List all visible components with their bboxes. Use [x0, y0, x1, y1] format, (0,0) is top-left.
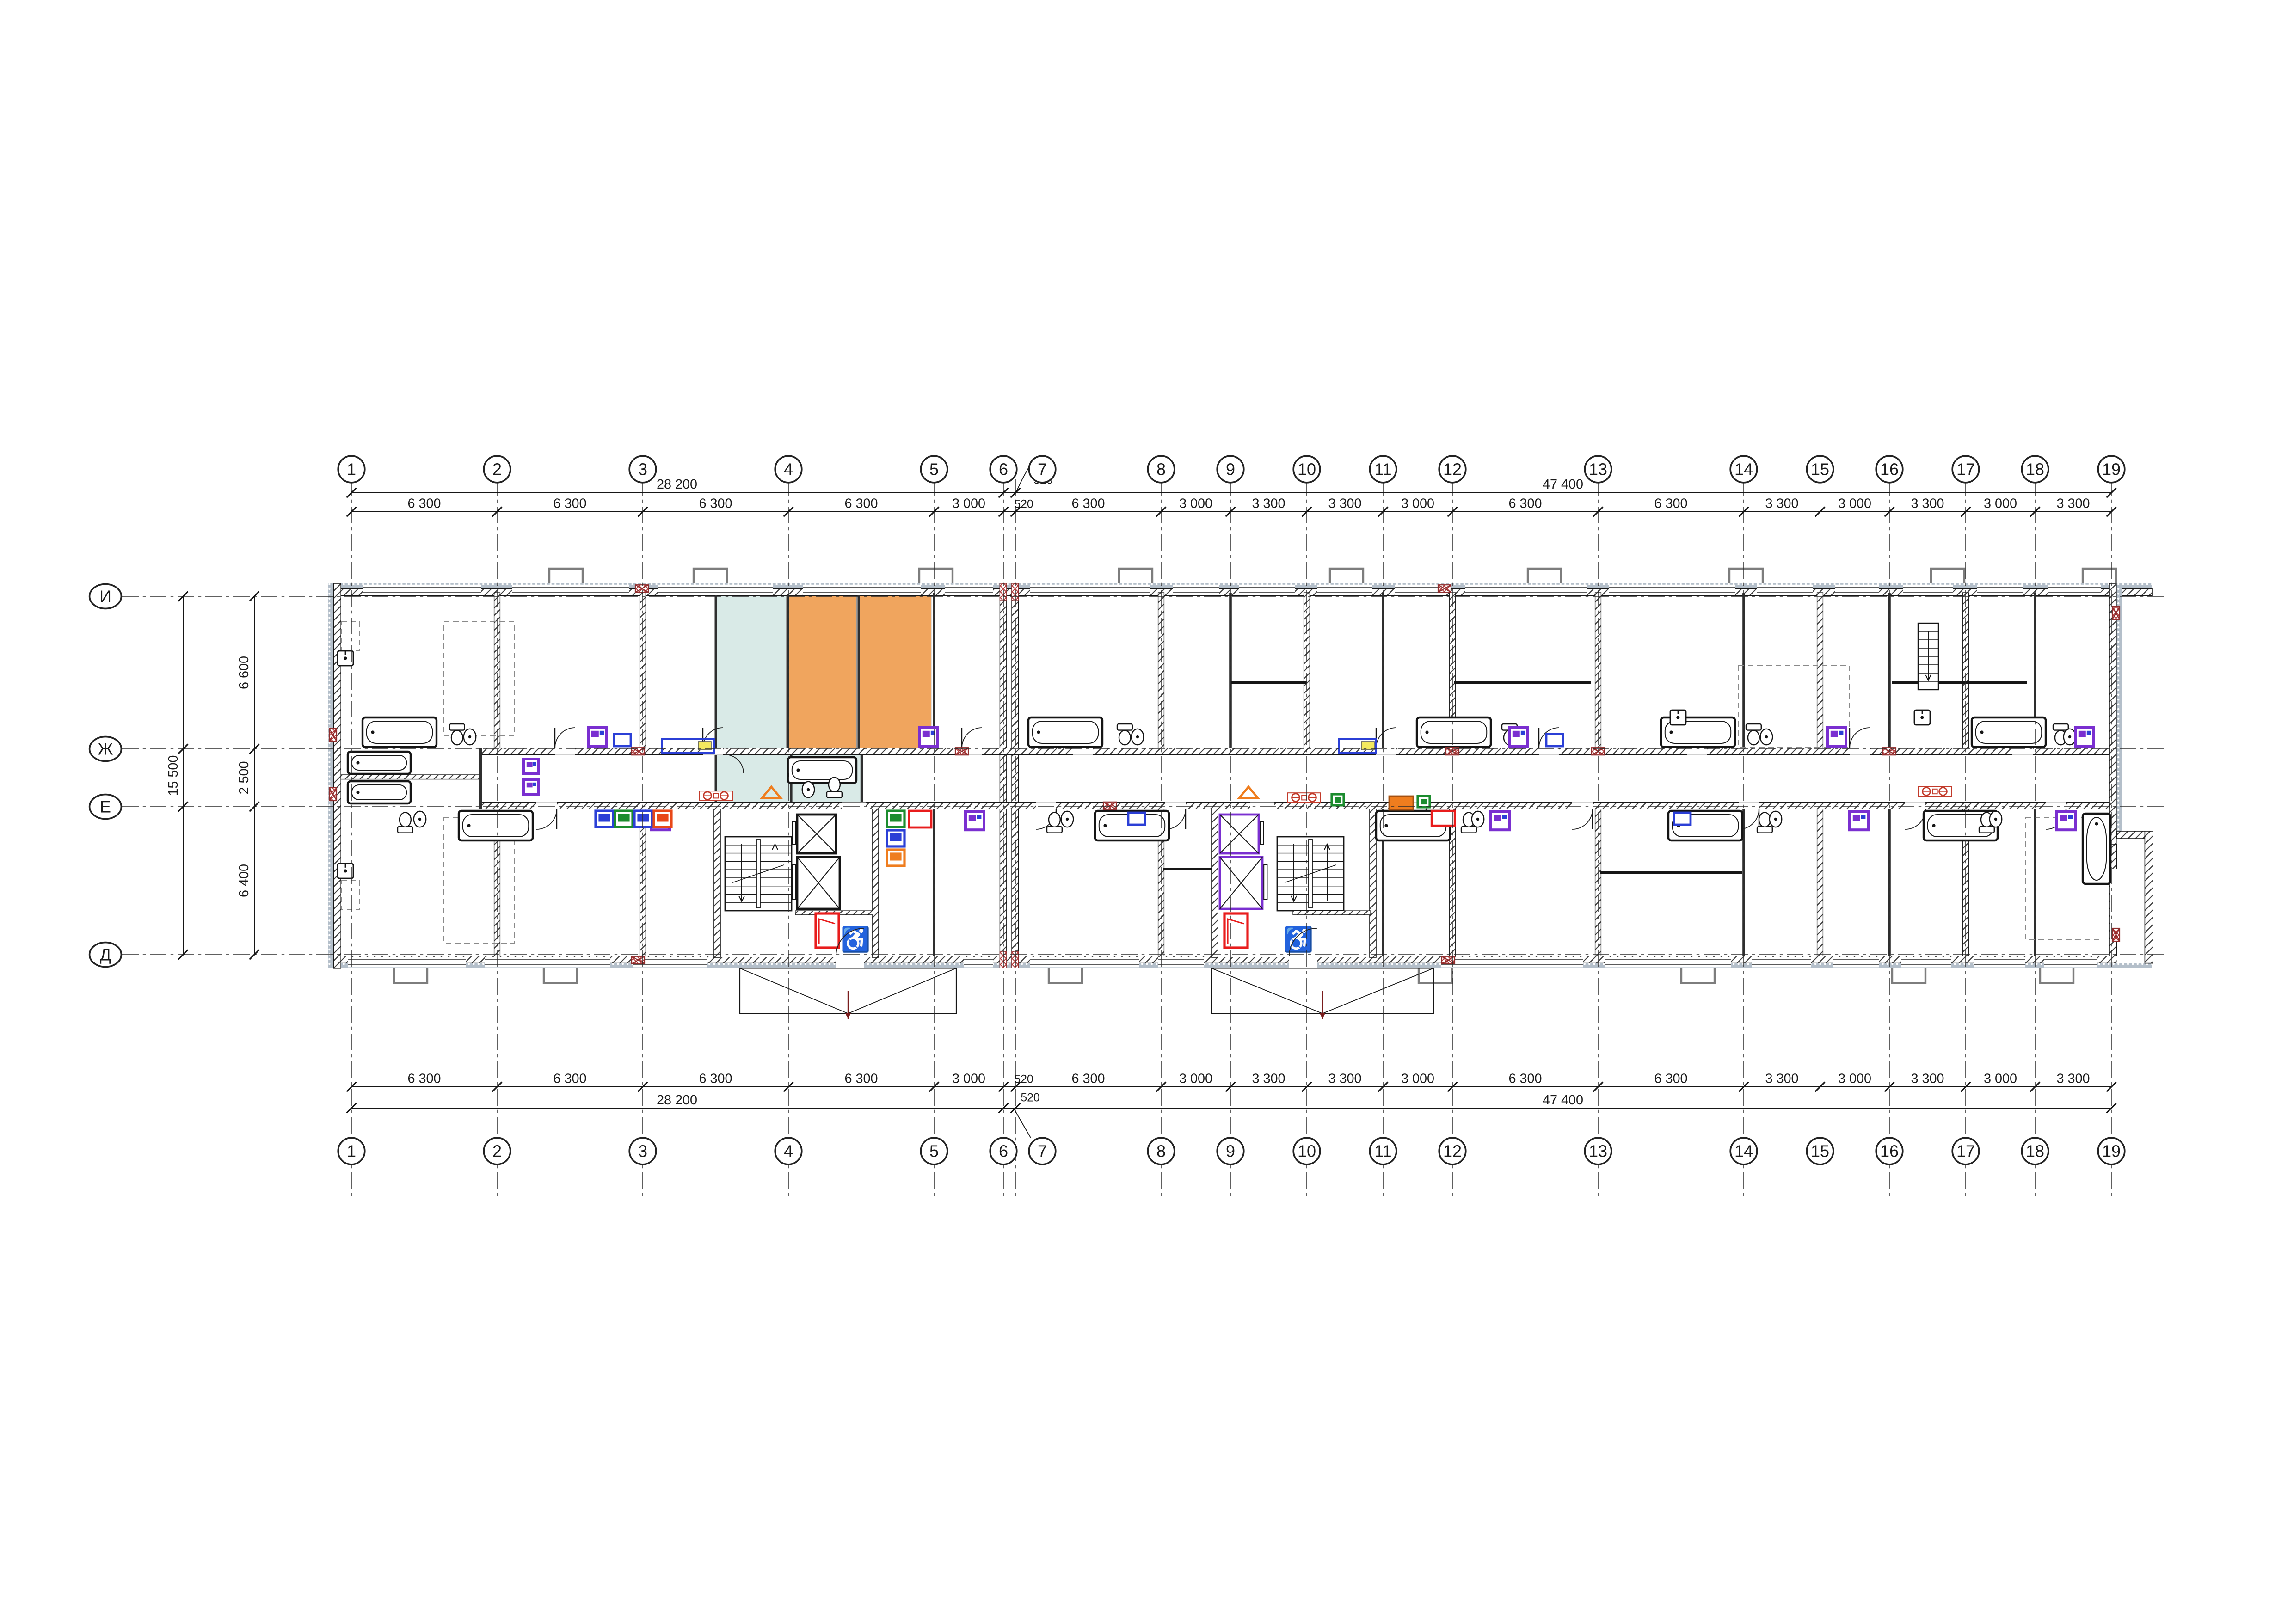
window-opening [1903, 585, 1953, 595]
parapet-stub [1729, 569, 1763, 583]
dimension-offset: 520 [1021, 1091, 1039, 1104]
corridor-opening [1572, 802, 1593, 809]
toilet-tank [1979, 827, 1994, 833]
window-opening [1835, 585, 1879, 595]
corridor-opening [536, 802, 557, 809]
washer-detail [527, 783, 533, 788]
unit-wall [861, 754, 863, 802]
toilet-bowl [1049, 813, 1060, 827]
entry-opening [836, 956, 864, 968]
bathtub-drain [356, 791, 359, 794]
dimension-label: 3 000 [1984, 496, 2017, 511]
grid-column-number: 2 [492, 1141, 502, 1160]
dimension-label: 3 300 [1328, 496, 1361, 511]
window-opening [2044, 957, 2097, 967]
dimension-label: 3 000 [1401, 1071, 1434, 1086]
dashed-boundary [444, 621, 514, 736]
parapet-stub [2040, 968, 2073, 983]
dimension-label: 3 000 [952, 1071, 985, 1086]
window-opening [1239, 585, 1295, 595]
grid-row-letter: И [99, 587, 111, 606]
window-opening [1609, 585, 1735, 595]
dimension-label: 3 300 [1252, 496, 1285, 511]
washer-detail [1494, 815, 1501, 821]
washer-detail [2068, 815, 2073, 819]
grid-row-letter: Е [100, 797, 111, 816]
corridor-opening [842, 803, 866, 809]
window-opening [1605, 957, 1731, 967]
grid-column-number: 10 [1298, 1141, 1316, 1160]
elevator-counterweight [793, 864, 796, 900]
window-opening [1977, 585, 2023, 595]
dimension-total: 47 400 [1543, 477, 1583, 492]
washer-detail [1831, 731, 1838, 737]
grid-column-number: 14 [1734, 460, 1753, 478]
dimension-label: 6 300 [844, 496, 878, 511]
toilet-bowl [1759, 813, 1771, 827]
dimension-label: 6 300 [1071, 496, 1105, 511]
appliance-detail [1421, 799, 1427, 804]
window-opening [1158, 957, 1204, 967]
grid-column-number: 11 [1374, 1141, 1391, 1160]
apartment-wall [1963, 593, 1969, 748]
sink-drain [1765, 735, 1768, 738]
window-opening [2048, 585, 2101, 595]
dimension-label: 6 300 [553, 1071, 586, 1086]
appliance-detail [637, 814, 649, 821]
grid-column-number: 9 [1226, 460, 1235, 478]
grid-column-number: 12 [1443, 1141, 1462, 1160]
canopy-diagonal [1212, 968, 1322, 1013]
core-wall [872, 809, 879, 957]
window-opening [964, 957, 993, 967]
grid-column-number: 10 [1298, 460, 1316, 478]
cabinet-blue-icon [1674, 813, 1691, 825]
parapet-stub [1528, 569, 1561, 583]
grid-column-number: 18 [2026, 1141, 2044, 1160]
toilet-tank [449, 724, 465, 730]
window-opening [803, 585, 921, 595]
window-opening [485, 957, 610, 967]
door-swing-arc [962, 728, 982, 748]
washer-detail [600, 731, 604, 735]
window-opening [1465, 585, 1587, 595]
elevator-counterweight [793, 822, 796, 844]
partition-wall [933, 593, 935, 748]
highlighted-room-teal [715, 594, 786, 748]
unit-wall [715, 594, 717, 803]
core-wall [714, 809, 720, 957]
apartment-wall [640, 593, 646, 748]
unit-wall [857, 594, 860, 748]
appliance-orange-icon [1389, 796, 1413, 810]
dimension-label: 520 [1014, 1073, 1033, 1085]
toilet-tank [827, 791, 842, 798]
sink-drain [1994, 818, 1997, 821]
corridor-end-wall [479, 748, 482, 809]
cabinet-blue-icon [614, 734, 631, 746]
dimension-total: 15 500 [166, 755, 181, 796]
grid-column-number: 13 [1589, 1141, 1607, 1160]
dimension-label: 3 000 [1838, 1071, 1871, 1086]
appliance-detail [598, 814, 610, 821]
walls-layer: ♿♿ [328, 569, 2153, 1019]
grid-column-number: 19 [2102, 460, 2121, 478]
sink-drain [807, 788, 810, 791]
bathtub-drain [1669, 730, 1673, 734]
grid-column-number: 1 [347, 1141, 356, 1160]
toilet-tank [398, 827, 413, 833]
dimension-label: 3 300 [1765, 1071, 1798, 1086]
grid-column-number: 4 [784, 460, 793, 478]
dimension-label: 6 300 [1508, 1071, 1542, 1086]
washer-detail [2060, 815, 2067, 821]
parapet-stub [919, 569, 953, 583]
dimension-total: 47 400 [1543, 1093, 1583, 1108]
lobby-wall [1293, 911, 1371, 915]
toilet-tank [1117, 724, 1132, 730]
window-opening [1030, 957, 1139, 967]
dimension-label: 6 300 [407, 496, 441, 511]
bathtub-drain [371, 730, 374, 734]
washer-detail [1839, 731, 1844, 735]
seam-vent [1012, 951, 1018, 968]
appliance-detail [890, 814, 901, 821]
elevator-counterweight [1260, 822, 1263, 844]
parapet-stub [694, 569, 727, 583]
dimension-label: 3 000 [1179, 496, 1212, 511]
party-wall-left [341, 775, 481, 779]
toilet-bowl [451, 730, 463, 745]
grid-column-number: 1 [347, 460, 356, 478]
sink-drain [1676, 716, 1679, 719]
dimension-label: 6 600 [237, 656, 252, 689]
dimension-label: 3 300 [2056, 496, 2090, 511]
washer-detail [931, 731, 935, 735]
triangle-marker-icon [1239, 787, 1258, 798]
grid-row-letter: Д [100, 945, 111, 964]
cabinet-blue-icon [1546, 734, 1563, 746]
appliance-detail [618, 814, 629, 821]
toilet-bowl [829, 778, 840, 792]
appliance-detail [890, 833, 901, 841]
washer-detail [533, 783, 536, 786]
bathtub-drain [356, 761, 359, 764]
washer-detail [977, 815, 982, 819]
leader-line [1015, 1111, 1031, 1138]
dimension-label: 6 400 [237, 864, 252, 897]
apartment-wall [1595, 593, 1601, 748]
corridor-opening [2046, 802, 2066, 809]
parapet-stub [1119, 569, 1152, 583]
dimension-label: 3 300 [2056, 1071, 2090, 1086]
canopy-diagonal [740, 968, 848, 1013]
dimension-label: 6 300 [553, 496, 586, 511]
dimension-label: 6 300 [1508, 496, 1542, 511]
canopy-diagonal [848, 968, 956, 1013]
seam-vent [1012, 583, 1018, 600]
window-opening [363, 585, 481, 595]
appliance-detail [657, 814, 668, 821]
extension-wall-right [2145, 831, 2153, 963]
dimension-total: 28 200 [657, 1093, 697, 1108]
exterior-wall-right [2109, 583, 2117, 844]
dimension-label: 6 300 [844, 1071, 878, 1086]
bathtub-drain [1425, 730, 1428, 734]
grid-column-number: 16 [1880, 460, 1899, 478]
bathtub-drain [1384, 824, 1388, 827]
dimension-label: 6 300 [1071, 1071, 1105, 1086]
washer-detail [1513, 731, 1520, 737]
washer-detail [1861, 815, 1866, 819]
canopy-arrowhead [845, 1013, 851, 1019]
parapet-stub [1892, 968, 1925, 983]
dimension-label: 3 000 [1984, 1071, 2017, 1086]
parapet-stub [1419, 968, 1452, 983]
toilet-tank [1757, 827, 1772, 833]
corridor-opening [1036, 802, 1056, 809]
grid-column-number: 3 [638, 1141, 647, 1160]
dimension-label: 3 300 [1328, 1071, 1361, 1086]
toilet-tank [1461, 827, 1476, 833]
seam-wall [1012, 583, 1018, 968]
grid-column-number: 16 [1880, 1141, 1899, 1160]
toilet-bowl [1748, 730, 1759, 745]
sink-drain [2068, 735, 2071, 738]
highlighted-room-orange [789, 594, 856, 748]
door-swing-arc [1572, 809, 1593, 829]
door-swing-arc [555, 728, 575, 748]
dimension-label: 3 000 [1179, 1071, 1212, 1086]
bathtub-drain [467, 824, 470, 827]
sink-drain [418, 818, 421, 821]
canopy-arrowhead [1320, 1013, 1325, 1019]
washer-detail [1521, 731, 1525, 735]
toilet-tank [1047, 827, 1062, 833]
door-swing-arc [1850, 728, 1870, 748]
dimension-label: 3 000 [1838, 496, 1871, 511]
sink-drain [1920, 716, 1924, 719]
grid-column-number: 7 [1038, 460, 1047, 478]
exterior-wall-insulation [328, 583, 333, 968]
door-swing-arc [1376, 728, 1396, 748]
bathtub-drain [1932, 824, 1935, 827]
exterior-wall-insulation [2117, 583, 2122, 844]
washer-detail [969, 815, 976, 821]
corridor-wall-bottom [481, 803, 2109, 809]
bathtub-drain [796, 768, 800, 772]
dimension-label: 6 300 [407, 1071, 441, 1086]
washer-detail [2087, 731, 2091, 735]
dimension-label: 3 300 [1911, 1071, 1944, 1086]
dimension-label: 6 300 [1654, 496, 1687, 511]
washer-detail [1853, 815, 1860, 821]
floor-plan-page: ♿♿ 28 20047 4006 3006 3006 3006 3003 000… [0, 0, 2294, 1622]
bathtub-drain [1037, 730, 1040, 734]
grid-column-number: 8 [1156, 460, 1166, 478]
grid-column-number: 17 [1956, 460, 1975, 478]
window-opening [1030, 585, 1150, 595]
washer-detail [533, 762, 536, 766]
parapet-stub [1681, 968, 1715, 983]
washer-detail [1502, 815, 1507, 819]
washer-detail [2079, 731, 2086, 737]
grid-column-number: 15 [1811, 1141, 1829, 1160]
apartment-wall [494, 593, 500, 748]
apartment-wall [1304, 593, 1310, 748]
sink-drain [344, 656, 347, 660]
fridge-red-icon [909, 811, 931, 827]
parapet-stub [544, 968, 577, 983]
appliance-detail [890, 852, 901, 860]
grid-column-number: 12 [1443, 460, 1462, 478]
window-opening [1317, 585, 1372, 595]
grid-column-number: 18 [2026, 460, 2044, 478]
floor-plan-canvas: ♿♿ 28 20047 4006 3006 3006 3006 3003 000… [0, 0, 2294, 1622]
door-swing-arc [536, 809, 557, 829]
bathtub-drain [2095, 822, 2098, 825]
window-opening [1974, 957, 2025, 967]
dimensions-layer: 28 20047 4006 3006 3006 3006 3003 000520… [166, 464, 2116, 1138]
window-opening [1752, 957, 1811, 967]
dimension-label: 3 000 [1401, 496, 1434, 511]
bathtub-drain [1103, 824, 1107, 827]
grid-column-number: 8 [1156, 1141, 1166, 1160]
fire-cabinet-red-icon [1432, 811, 1455, 826]
partition-wall [1382, 593, 1384, 748]
corridor-opening [1739, 802, 1759, 809]
grid-column-number: 2 [492, 460, 502, 478]
parapet-stub [1330, 569, 1363, 583]
grid-column-number: 5 [929, 460, 939, 478]
corridor-opening [1905, 802, 1925, 809]
dimension-label: 6 300 [1654, 1071, 1687, 1086]
dimension-label: 520 [1014, 498, 1033, 510]
grid-column-number: 17 [1956, 1141, 1975, 1160]
parapet-stub [1049, 968, 1082, 983]
grid-column-number: 14 [1734, 1141, 1753, 1160]
sink-drain [468, 735, 471, 738]
grid-column-number: 9 [1226, 1141, 1235, 1160]
toilet-bowl [400, 813, 411, 827]
appliance-detail [1335, 797, 1341, 803]
window-opening [512, 585, 629, 595]
cabinet-blue-icon [1128, 813, 1145, 825]
partition-wall [1229, 593, 1232, 748]
window-opening [945, 585, 993, 595]
sink-drain [344, 869, 347, 872]
entry-opening [1289, 956, 1317, 968]
window-opening [1901, 957, 1951, 967]
grid-row-letter: Ж [98, 739, 113, 758]
apartment-wall [1158, 593, 1164, 748]
toilet-bowl [1119, 730, 1131, 745]
sink-drain [1066, 818, 1069, 821]
grid-column-number: 4 [784, 1141, 793, 1160]
elevator-counterweight [1264, 864, 1267, 900]
partition-wall [1888, 593, 1891, 748]
dashed-boundary [341, 880, 360, 910]
sink-drain [1774, 818, 1777, 821]
dimension-label: 3 000 [952, 496, 985, 511]
window-opening [1441, 957, 1583, 967]
window-opening [658, 585, 773, 595]
grid-column-number: 7 [1038, 1141, 1047, 1160]
grid-column-number: 5 [929, 1141, 939, 1160]
washer-detail [527, 762, 533, 767]
window-opening [348, 957, 466, 967]
dimension-label: 6 300 [699, 1071, 732, 1086]
washer-detail [923, 731, 930, 737]
parapet-stub [549, 569, 583, 583]
grid-column-number: 15 [1811, 460, 1829, 478]
canopy-diagonal [1322, 968, 1433, 1013]
corridor-opening [1165, 802, 1186, 809]
toilet-tank [1746, 724, 1761, 730]
dashed-boundary [341, 621, 360, 651]
sink-drain [1136, 735, 1139, 738]
window-opening [1757, 585, 1813, 595]
dimension-label: 3 300 [1765, 496, 1798, 511]
door-swing-arc [1905, 809, 1925, 829]
toilet-tank [2053, 724, 2068, 730]
dimension-label: 6 300 [699, 496, 732, 511]
dimension-label: 3 300 [1252, 1071, 1285, 1086]
grid-column-number: 19 [2102, 1141, 2121, 1160]
window-opening [1833, 957, 1879, 967]
dimension-total: 28 200 [657, 477, 697, 492]
core-wall [1212, 809, 1218, 957]
grid-column-number: 6 [999, 460, 1008, 478]
grid-column-number: 13 [1589, 460, 1607, 478]
grid-column-number: 6 [999, 1141, 1008, 1160]
corridor-opening [1250, 803, 1274, 809]
window-opening [1395, 585, 1443, 595]
parapet-stub [394, 968, 427, 983]
parapet-stub [1931, 569, 1964, 583]
dimension-label: 3 300 [1911, 496, 1944, 511]
bathtub-drain [1980, 730, 1983, 734]
sink-drain [1476, 818, 1479, 821]
highlighted-room-orange [860, 594, 931, 748]
washer-detail [591, 731, 599, 737]
grid-column-number: 11 [1374, 460, 1391, 478]
apartment-wall [1817, 593, 1823, 748]
parapet-stub [2083, 569, 2116, 583]
window-opening [1173, 585, 1219, 595]
grid-column-number: 3 [638, 460, 647, 478]
partition-wall [1742, 593, 1745, 748]
unit-wall [787, 594, 789, 748]
dimension-label: 2 500 [237, 761, 252, 794]
exterior-wall-left [333, 583, 341, 968]
